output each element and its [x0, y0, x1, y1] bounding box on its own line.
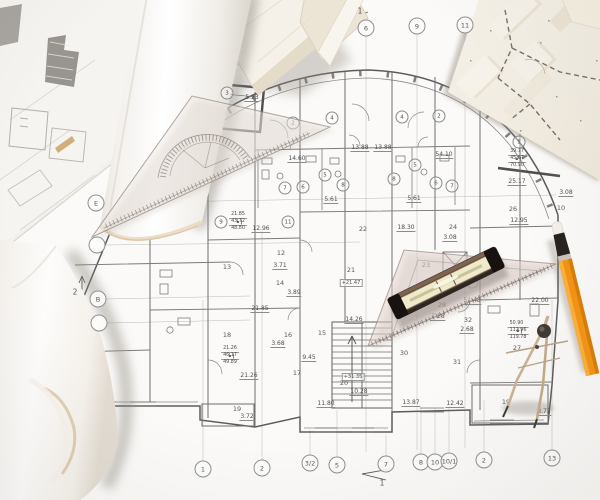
pencil — [549, 220, 599, 376]
drafting-tools-layer — [0, 0, 600, 500]
blueprint-photo-scene: 5.2314.6013.8813.8854.1025.173.085.615.6… — [0, 0, 600, 500]
drafting-compass — [502, 316, 568, 428]
protractor-set-square — [92, 96, 334, 240]
